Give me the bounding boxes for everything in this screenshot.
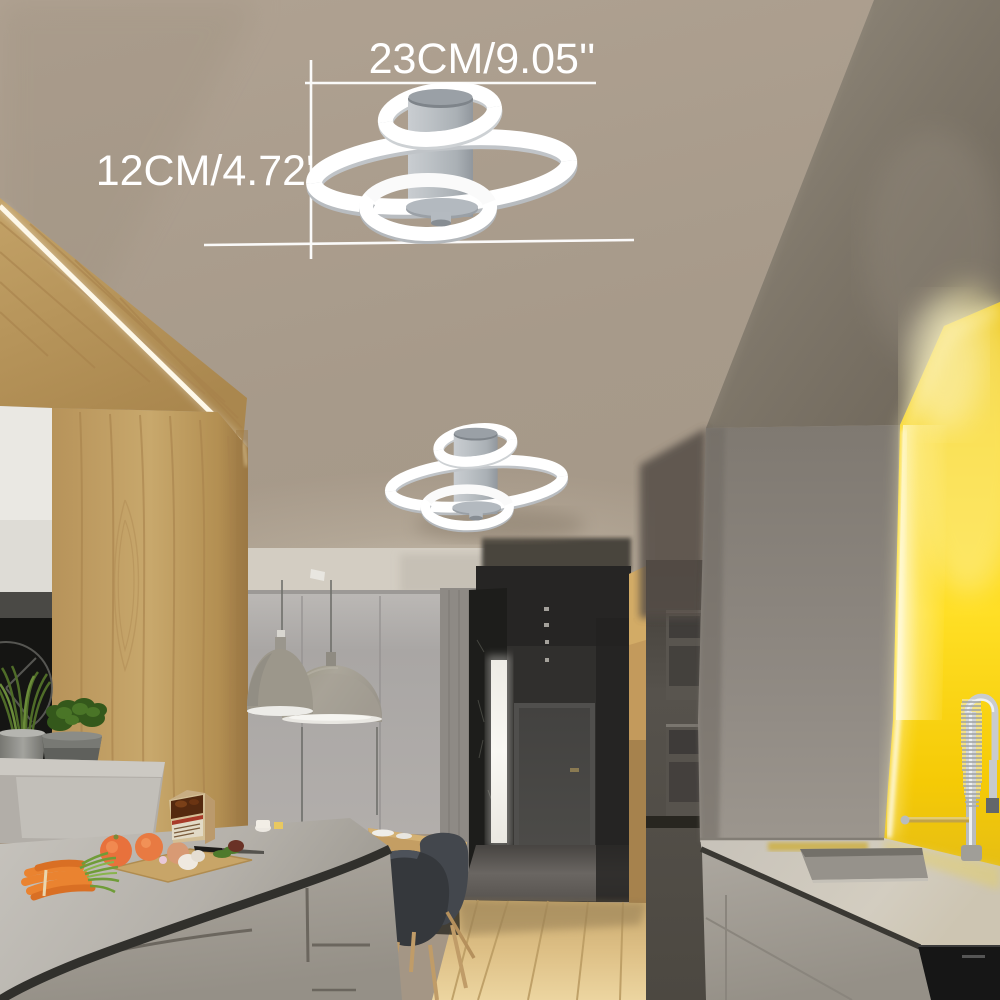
svg-text:12CM/4.72': 12CM/4.72' <box>96 147 315 195</box>
svg-text:23CM/9.05'': 23CM/9.05'' <box>369 35 596 83</box>
